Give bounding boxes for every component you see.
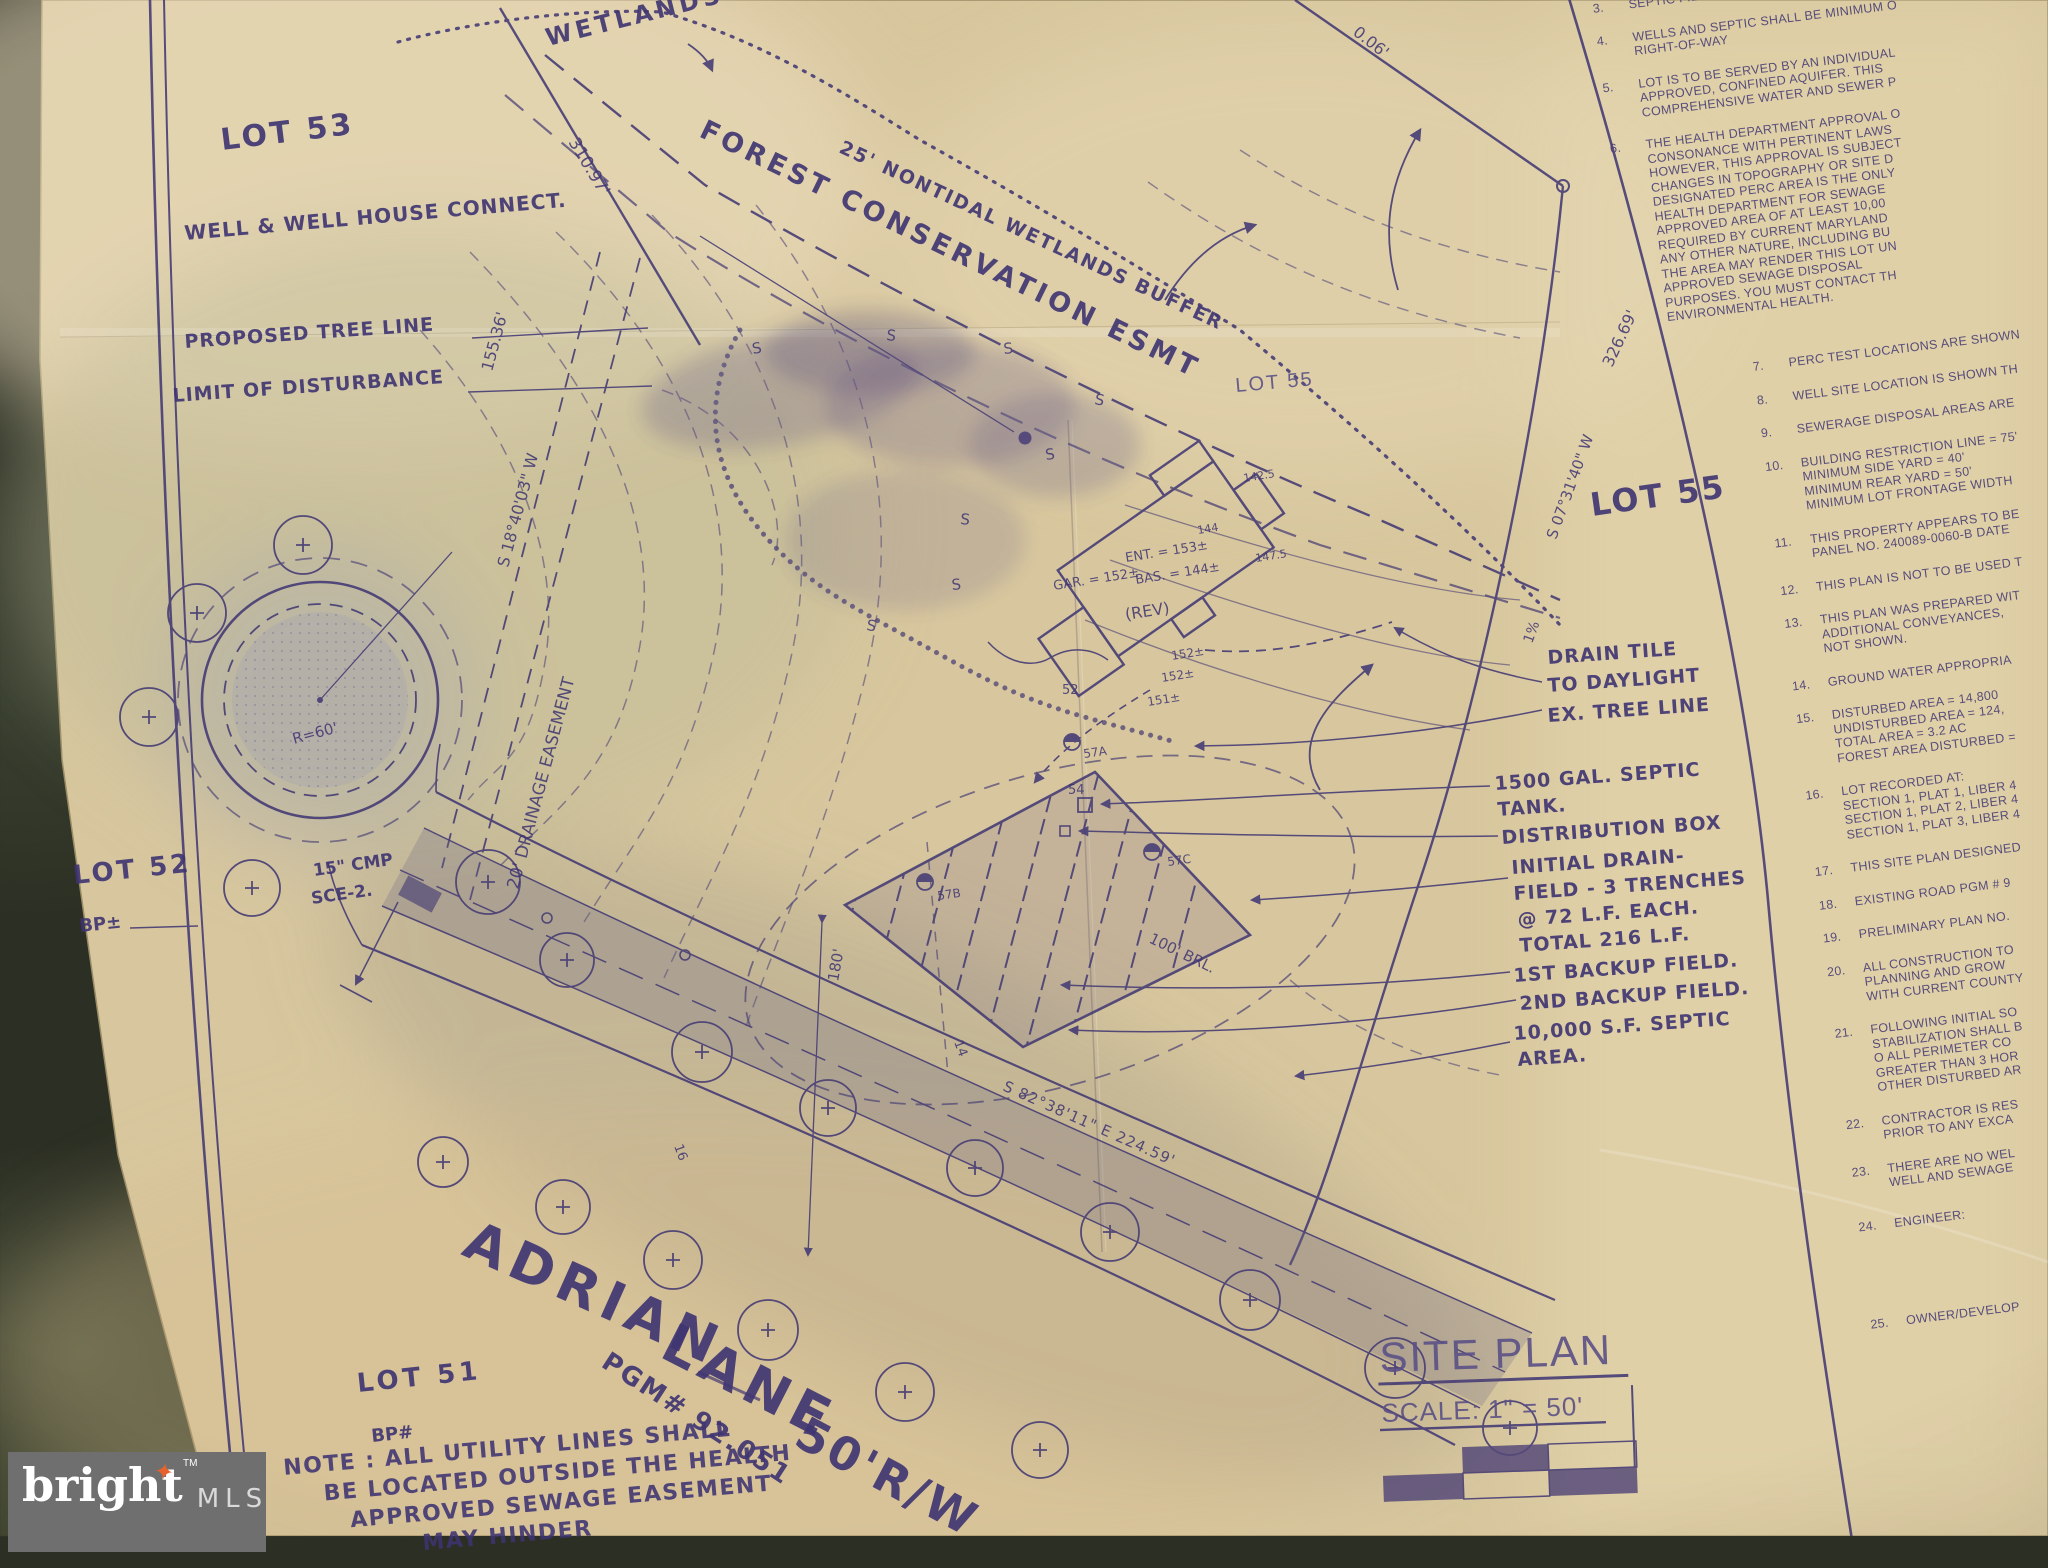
note-text: THIS PROPERTY APPEARS TO BEPANEL NO. 240… [1809,506,2022,560]
general-notes-top: 3.SEPTIC FIELD SHALL BE MINIMUM 254.WELL… [1592,0,1934,347]
note-line: THIS PLAN IS NOT TO BE USED T [1815,554,2023,594]
note-number: 12. [1779,579,1816,598]
note-text: WELL SITE LOCATION IS SHOWN TH [1792,361,2019,403]
note-text: THIS SITE PLAN DESIGNED [1850,840,2022,875]
note-line: GROUND WATER APPROPRIA [1827,652,2012,689]
note-number: 19. [1822,927,1859,946]
note-number: 3. [1592,0,1629,16]
trademark-symbol: TM [183,1458,197,1469]
note-item: 20.ALL CONSTRUCTION TOPLANNING AND GROWW… [1826,932,2048,1008]
note-number: 7. [1752,356,1789,375]
note-number: 5. [1602,77,1643,125]
note-text: EXISTING ROAD PGM # 9 [1854,875,2012,909]
note-text: ENGINEER: [1893,1207,1966,1230]
note-text: THE HEALTH DEPARTMENT APPROVAL OCONSONAN… [1645,106,1923,324]
bright-mls-watermark: bright ✦ TM MLS [8,1452,266,1552]
note-number: 13. [1784,613,1825,661]
note-text: OWNER/DEVELOP [1905,1299,2020,1327]
s-marker: S [960,510,971,529]
note-text: GROUND WATER APPROPRIA [1827,652,2012,689]
note-number: 8. [1756,389,1793,408]
note-text: LOT IS TO BE SERVED BY AN INDIVIDUALAPPR… [1637,45,1899,120]
note-line: WELL SITE LOCATION IS SHOWN TH [1792,361,2019,403]
note-line: ENGINEER: [1893,1207,1966,1230]
s-marker: S [951,575,962,594]
star-icon: ✦ [152,1457,176,1489]
contour-54: 54 [1068,783,1085,798]
label-lot52-bp: BP± [78,912,122,937]
note-number: 20. [1826,961,1867,1009]
note-number: 14. [1791,675,1828,694]
note-number: 9. [1760,422,1797,441]
note-text: THERE ARE NO WELWELL AND SEWAGE [1887,1145,2018,1189]
note-line: OWNER/DEVELOP [1905,1299,2020,1327]
note-number: 17. [1814,861,1851,880]
note-number: 22. [1845,1113,1884,1146]
note-item: 25.OWNER/DEVELOP [1870,1285,2048,1332]
note-number: 18. [1818,894,1855,913]
note-text: BUILDING RESTRICTION LINE = 75'MINIMUM S… [1800,429,2024,513]
note-number: 24. [1858,1216,1895,1235]
note-text: THIS PLAN IS NOT TO BE USED T [1815,554,2023,594]
note-text: THIS PLAN WAS PREPARED WITADDITIONAL CON… [1819,588,2024,656]
s-marker: S [886,326,897,345]
note-text: PRELIMINARY PLAN NO. [1858,909,2011,942]
note-item: 6.THE HEALTH DEPARTMENT APPROVAL OCONSON… [1609,105,1932,329]
mls-logo-text: MLS [197,1484,268,1514]
note-text: FOLLOWING INITIAL SOSTABILIZATION SHALL … [1870,1004,2029,1094]
photo-of-site-plan: { "watermark": {"brand":"bright","tm":"T… [0,0,2048,1536]
note-text: DISTURBED AREA = 14,800UNDISTURBED AREA … [1831,686,2017,766]
note-line: THIS SITE PLAN DESIGNED [1850,840,2022,875]
note-number: 25. [1870,1313,1907,1332]
note-item: 21.FOLLOWING INITIAL SOSTABILIZATION SHA… [1834,994,2048,1099]
well-symbol [1019,432,1032,445]
note-line: EXISTING ROAD PGM # 9 [1854,875,2012,909]
title-site-plan: SITE PLAN [1379,1326,1613,1381]
note-item: 16.LOT RECORDED AT:SECTION 1, PLAT 1, LI… [1805,756,2048,846]
note-item: 24.ENGINEER: [1858,1187,2048,1234]
s-marker: S [1003,339,1014,358]
note-number: 23. [1851,1161,1890,1194]
note-line: SEWERAGE DISPOSAL AREAS ARE [1796,395,2016,436]
note-item: 10.BUILDING RESTRICTION LINE = 75'MINIMU… [1764,427,2038,517]
note-number: 11. [1774,532,1813,565]
note-text: SEWERAGE DISPOSAL AREAS ARE [1796,395,2016,436]
note-item: 13.THIS PLAN WAS PREPARED WITADDITIONAL … [1784,584,2048,660]
note-text: LOT RECORDED AT:SECTION 1, PLAT 1, LIBER… [1840,763,2021,842]
contour-52: 52 [1062,683,1079,698]
note-line: PRELIMINARY PLAN NO. [1858,909,2011,942]
note-number: 4. [1596,30,1635,63]
note-text: ALL CONSTRUCTION TOPLANNING AND GROWWITH… [1862,941,2024,1003]
note-text: CONTRACTOR IS RESPRIOR TO ANY EXCA [1881,1097,2021,1143]
note-item: 15.DISTURBED AREA = 14,800UNDISTURBED AR… [1795,680,2048,770]
